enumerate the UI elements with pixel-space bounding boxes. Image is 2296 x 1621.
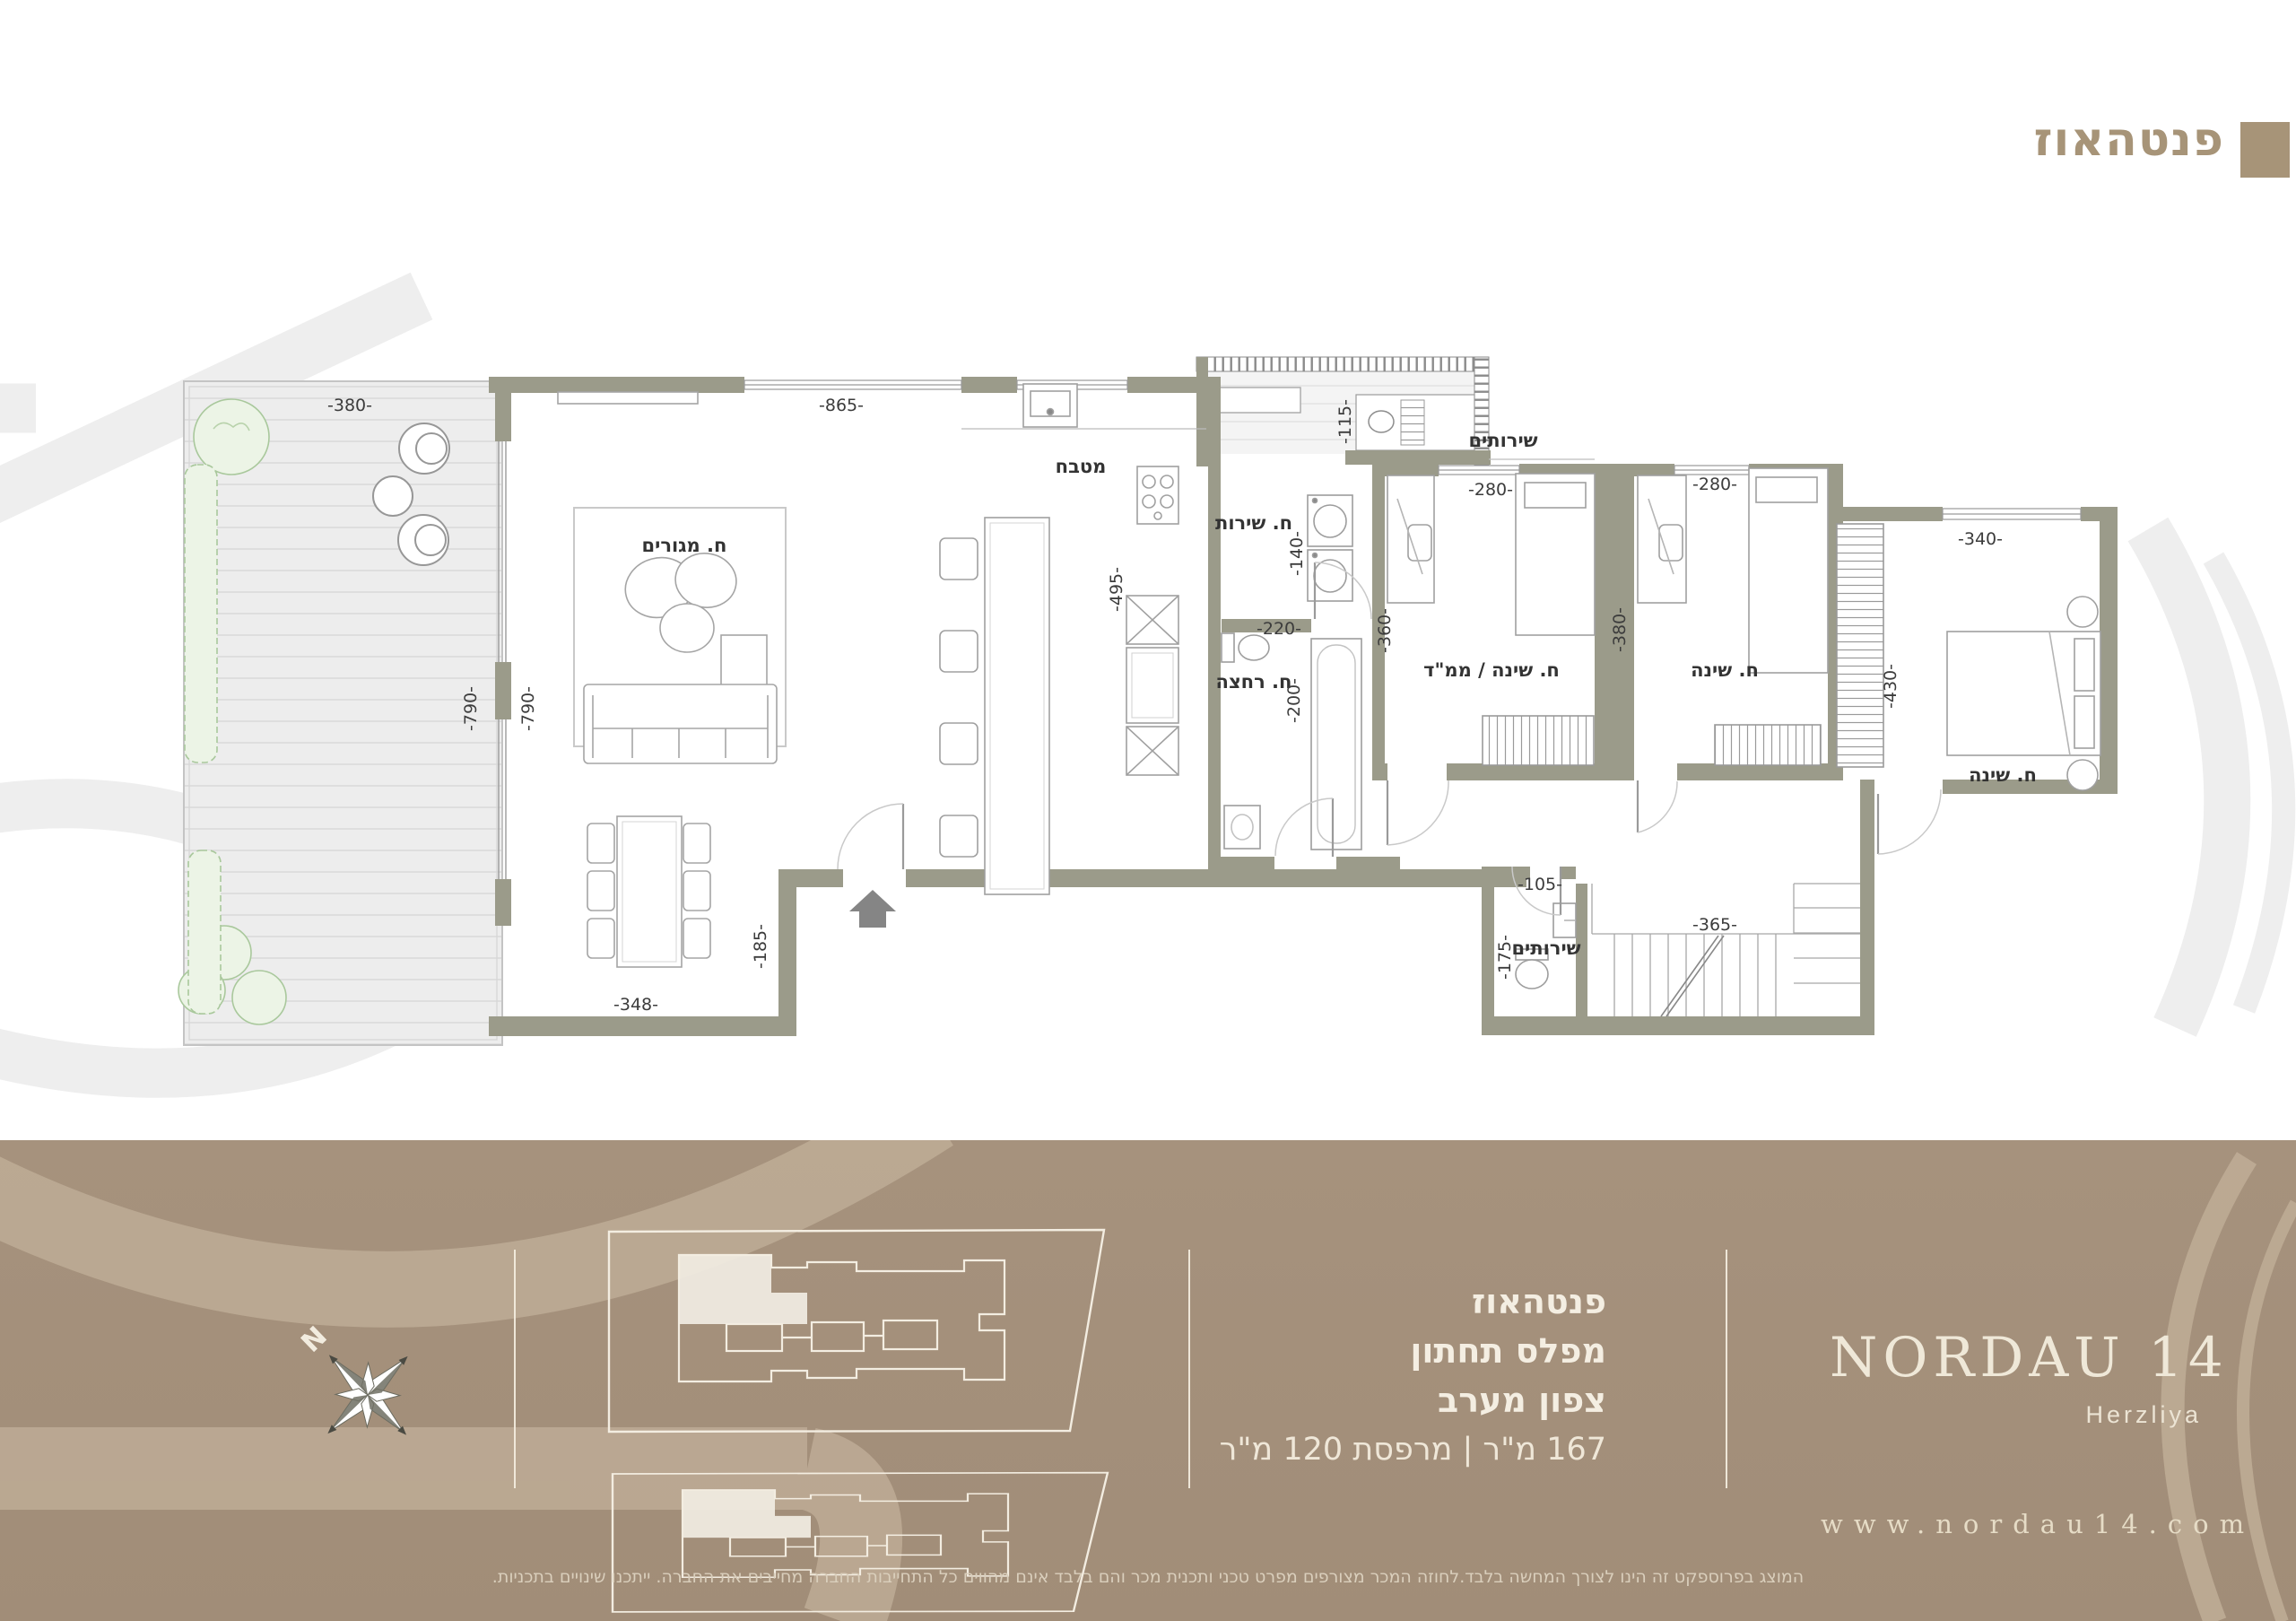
label-bedroom-2: ח. שינה xyxy=(1691,659,1759,681)
label-wc-bottom: שירותים xyxy=(1511,937,1580,959)
unit-info-block: פנטהאוז מפלס תחתון צפון מערב 167 מ"ר | מ… xyxy=(1220,1277,1606,1475)
dim-bed1-width: -280- xyxy=(1468,480,1513,500)
closet xyxy=(1483,716,1594,765)
toilet-icon xyxy=(1516,960,1548,989)
siteplan-upper xyxy=(609,1230,1104,1432)
bedroom-mamad xyxy=(1387,474,1595,765)
bathtub-icon xyxy=(1311,639,1361,850)
label-wc-top: שירותים xyxy=(1468,430,1537,451)
dim-wc-width: -105- xyxy=(1518,875,1562,894)
brand-url[interactable]: www.nordau14.com xyxy=(1821,1509,2255,1539)
dim-bath-width: -220- xyxy=(1257,619,1301,639)
double-bed xyxy=(1749,468,1828,673)
label-living-room: ח. מגורים xyxy=(642,535,727,556)
toilet-icon xyxy=(1239,635,1269,660)
dim-dining-width: -348- xyxy=(613,995,658,1015)
living-room-furniture xyxy=(558,392,786,763)
brand-logo: NORDAU 14 xyxy=(1830,1326,2224,1390)
dim-living-width: -865- xyxy=(819,396,864,415)
dim-bed2-height: -380- xyxy=(1610,607,1630,652)
disclaimer-text: המוצג בפרוספקט זה הינו לצורך המחשה בלבד.… xyxy=(386,1567,1910,1587)
cooktop-icon xyxy=(1137,466,1178,524)
dining-set xyxy=(587,816,710,967)
watermark-leaves xyxy=(2173,1158,2296,1621)
nightstand xyxy=(2067,597,2098,627)
bathroom-fixtures xyxy=(1222,633,1361,850)
vanity-icon xyxy=(1224,806,1260,849)
double-bed xyxy=(1947,597,2100,790)
toilet-icon xyxy=(1369,411,1394,432)
dim-boiler: -115- xyxy=(1335,399,1355,444)
staircase xyxy=(1592,884,1860,1016)
label-bedroom-mamad: ח. שינה / ממ"ד xyxy=(1423,659,1560,681)
toilet-tank xyxy=(1222,633,1234,662)
unit-name: פנטהאוז xyxy=(1220,1277,1606,1327)
label-master-bedroom: ח. שינה xyxy=(1969,764,2037,786)
dim-entry-height: -185- xyxy=(751,924,770,969)
watermark-letters-band xyxy=(0,1140,933,1621)
dim-terrace-height-a: -790- xyxy=(461,686,481,731)
dim-bed1-height: -360- xyxy=(1375,608,1395,653)
page-title: פנטהאוז xyxy=(2034,113,2224,167)
compass-north-label: N xyxy=(295,1320,333,1359)
label-service-room: ח. שירות xyxy=(1215,512,1292,534)
dim-master-width: -340- xyxy=(1958,529,2003,549)
dim-kitchen-depth: -495- xyxy=(1107,567,1126,612)
sink-icon xyxy=(1023,384,1077,427)
unit-area: 167 מ"ר | מרפסת 120 מ"ר xyxy=(1220,1425,1606,1475)
wardrobe xyxy=(1837,524,1883,767)
dim-master-height: -430- xyxy=(1881,664,1900,709)
label-bathroom: ח. רחצה xyxy=(1216,671,1292,693)
unit-level: מפלס תחתון xyxy=(1220,1327,1606,1376)
tv-unit xyxy=(558,392,698,404)
dim-wc-height: -175- xyxy=(1495,935,1515,980)
nightstand xyxy=(2067,760,2098,790)
dim-terrace-width: -380- xyxy=(327,396,372,415)
sofa xyxy=(584,684,777,763)
brochure-page: ח. מגורים מטבח ח. שירות ח. רחצה שירותים … xyxy=(0,0,2296,1621)
entrance-arrow-icon xyxy=(849,890,896,911)
title-square xyxy=(2240,122,2290,178)
dim-bath-height: -200- xyxy=(1284,678,1304,723)
dim-service-width: -140- xyxy=(1287,531,1307,576)
dim-stair-width: -365- xyxy=(1692,915,1737,935)
unit-orientation: צפון מערב xyxy=(1220,1376,1606,1425)
single-bed xyxy=(1516,474,1595,635)
brand-city: Herzliya xyxy=(2085,1401,2202,1429)
bedroom-2 xyxy=(1638,468,1828,765)
label-kitchen: מטבח xyxy=(1056,456,1107,477)
pantry-cabinets xyxy=(1126,596,1178,775)
floor-plan: ח. מגורים מטבח ח. שירות ח. רחצה שירותים … xyxy=(0,0,2296,1140)
dim-terrace-height-b: -790- xyxy=(518,686,538,731)
master-bedroom xyxy=(1837,524,2100,790)
dim-bed2-width: -280- xyxy=(1692,475,1737,494)
closet xyxy=(1715,725,1821,765)
kitchen-island xyxy=(940,518,1049,894)
